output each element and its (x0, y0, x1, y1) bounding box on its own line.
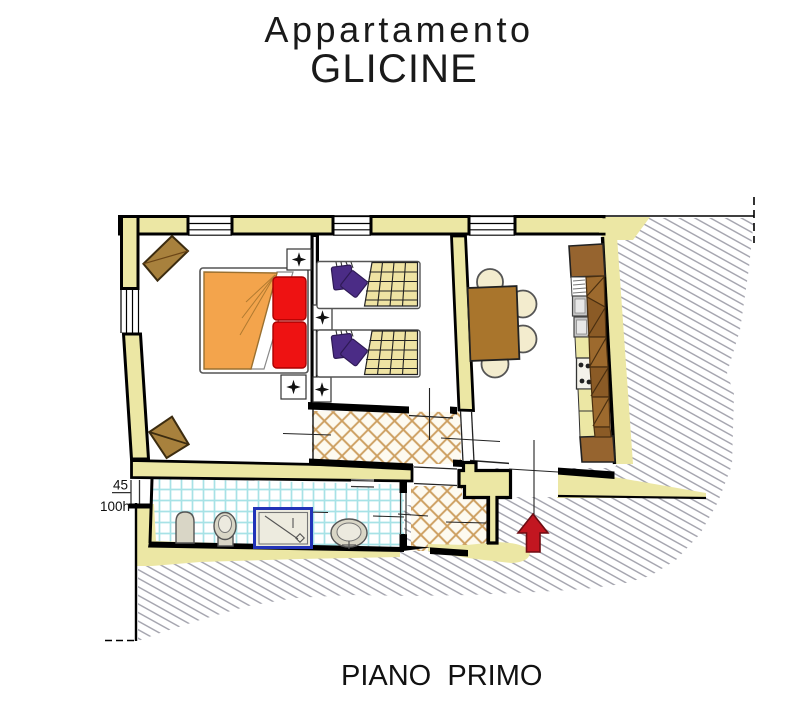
svg-text:PIANO PRIMO: PIANO PRIMO (341, 660, 542, 692)
svg-text:100h: 100h (100, 499, 130, 514)
svg-text:GLICINE: GLICINE (310, 47, 478, 91)
svg-text:45: 45 (113, 478, 128, 493)
svg-text:Appartamento: Appartamento (264, 9, 533, 50)
